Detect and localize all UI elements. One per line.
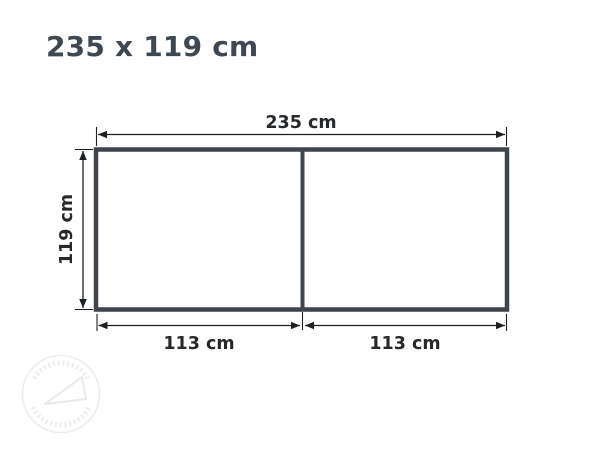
watermark-triangle-logo (45, 377, 86, 404)
watermark-ring (23, 356, 100, 433)
watermark (23, 356, 100, 433)
overall-width-label: 235 cm (265, 113, 336, 133)
section-left-label: 113 cm (163, 334, 234, 354)
section-right-label: 113 cm (369, 334, 440, 354)
dimension-overall-height: 119 cm (57, 150, 93, 310)
watermark-bottom-text-arc (33, 407, 89, 425)
dimension-section-right: 113 cm (305, 314, 507, 354)
product-dimension-view: 235 x 119 cm 235 cm 11 (0, 0, 607, 455)
dimension-overall-width: 235 cm (97, 113, 507, 146)
dimension-diagram: 235 cm 119 cm 113 cm 113 cm (0, 0, 607, 455)
overall-height-label: 119 cm (57, 194, 77, 265)
dimension-section-left: 113 cm (97, 312, 303, 354)
watermark-top-text-arc (34, 363, 88, 378)
